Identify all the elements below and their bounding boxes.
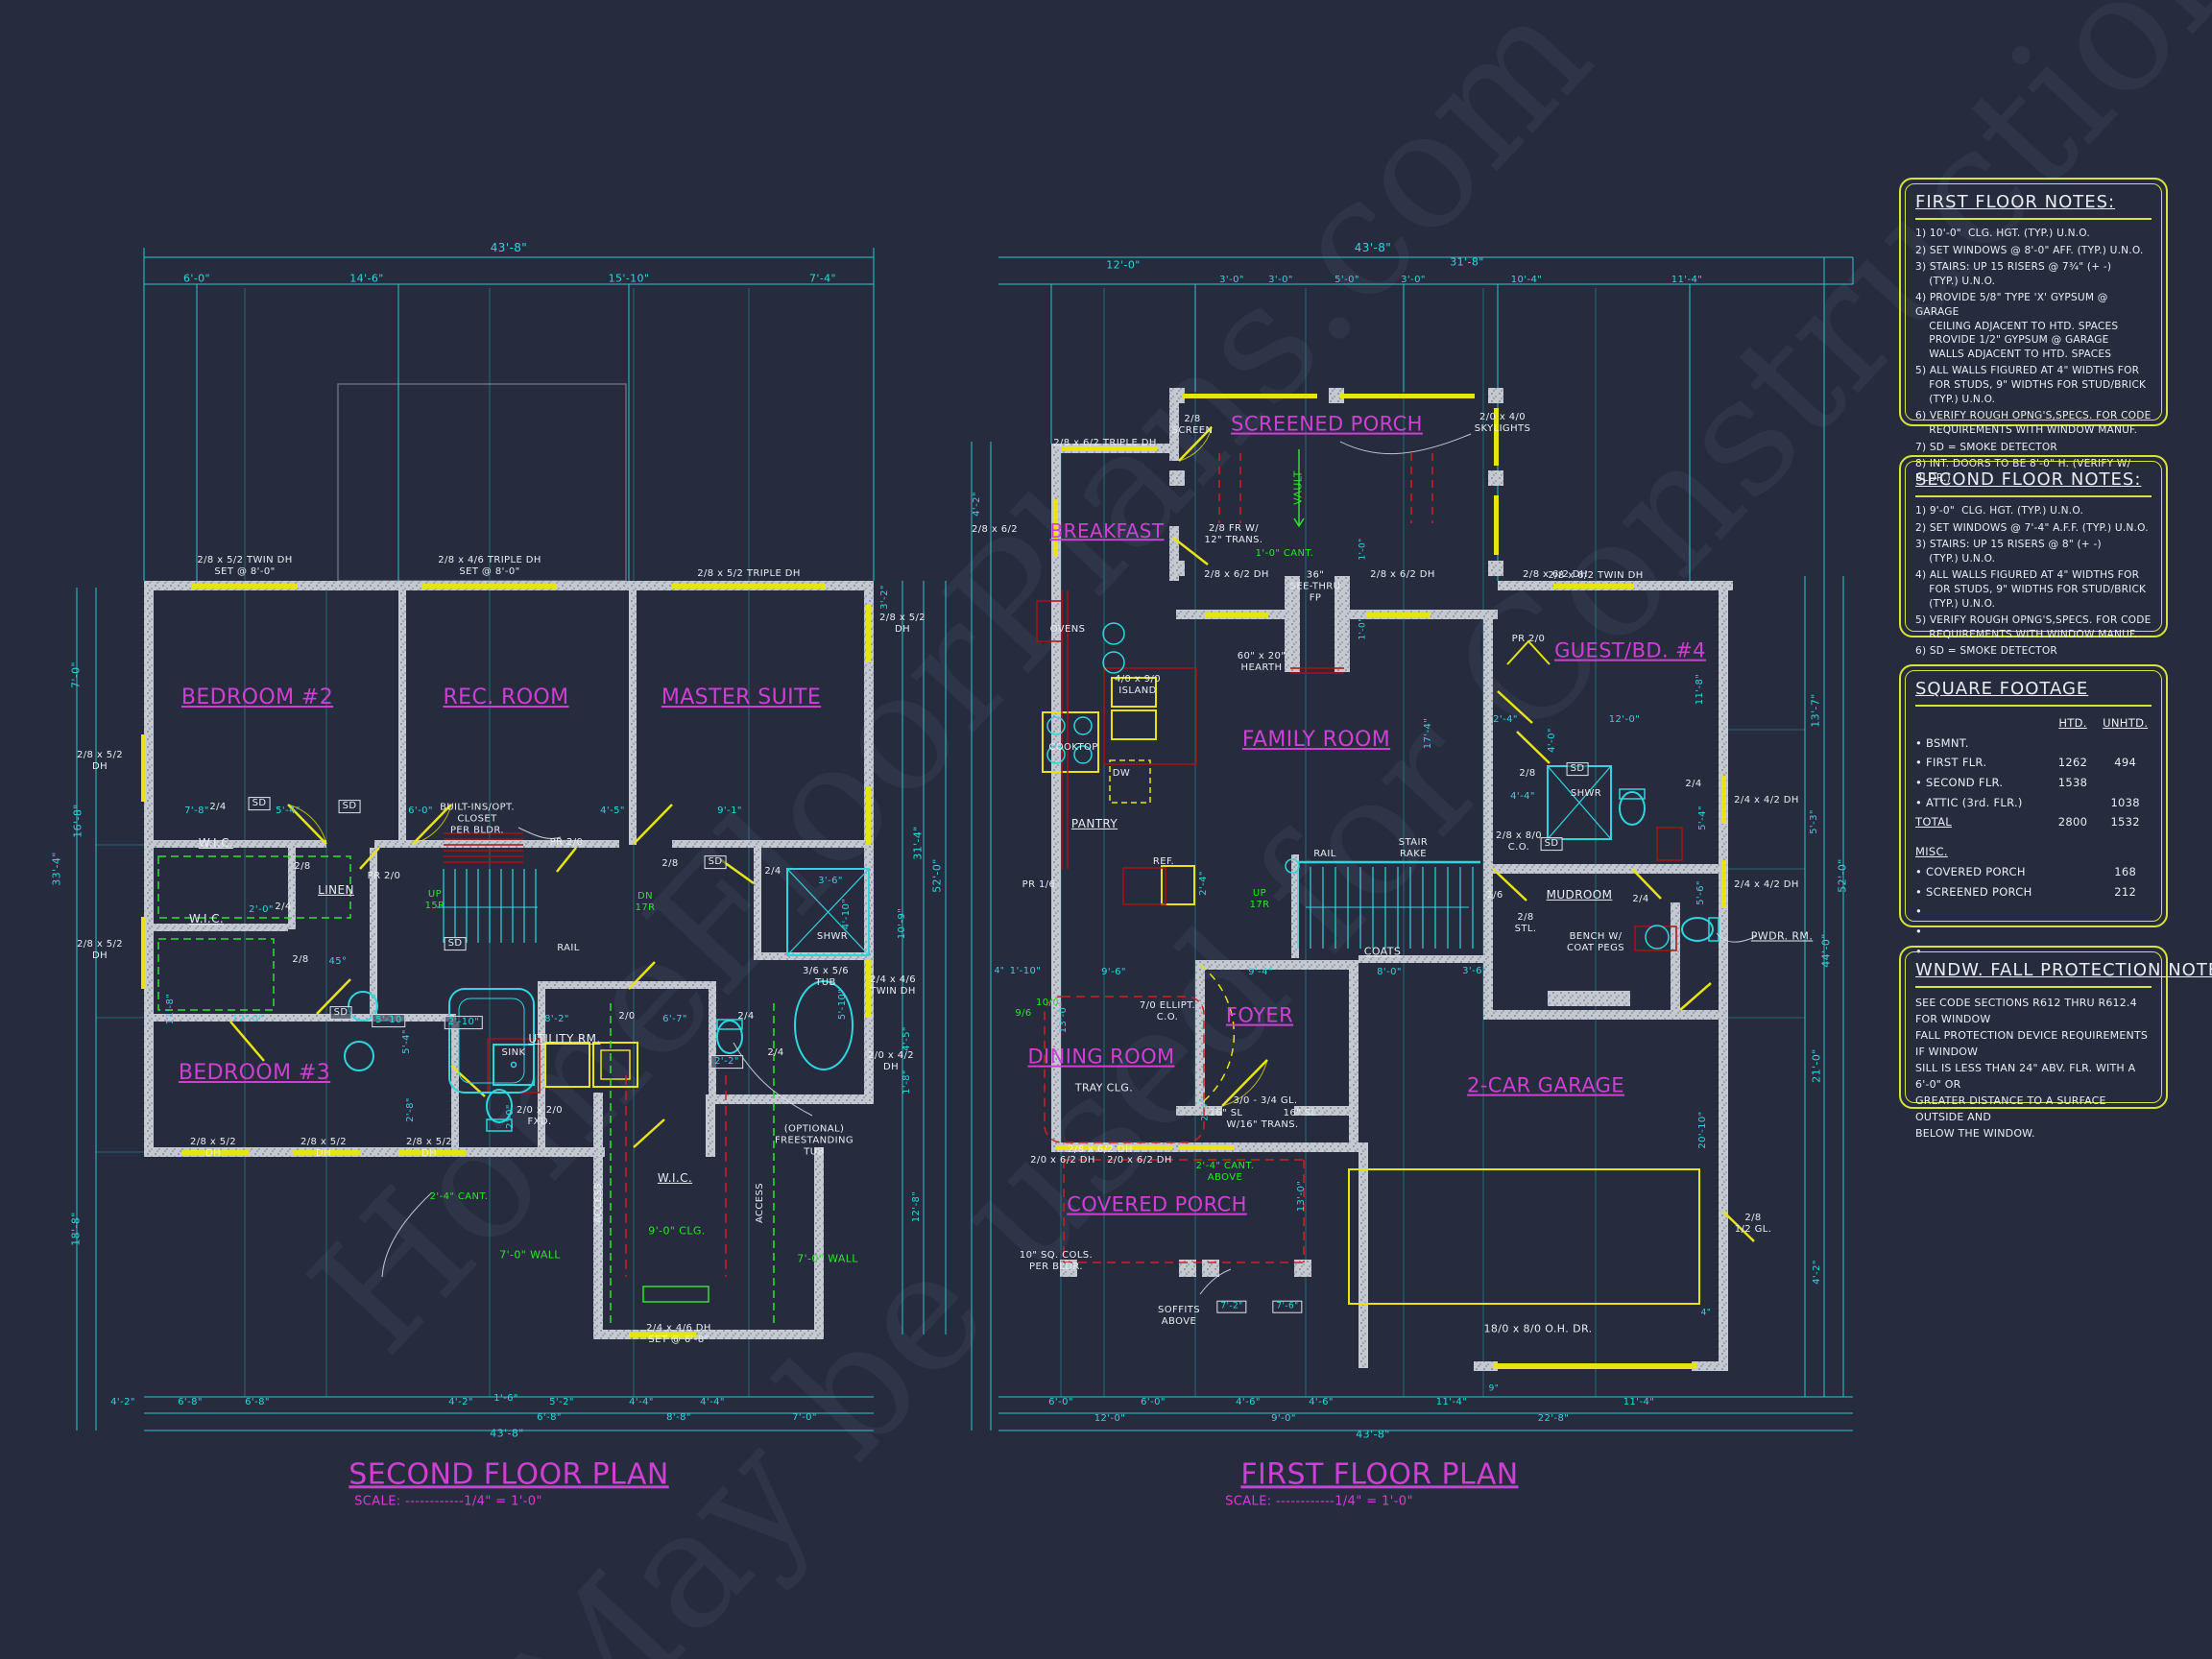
plan-label: 2/4 x 4/2 DH <box>1734 795 1799 806</box>
plan-label: COVERED PORCH <box>1067 1193 1247 1217</box>
second-floor-notes-list: 1) 9'-0" CLG. HGT. (TYP.) U.N.O.2) SET W… <box>1915 504 2152 659</box>
plan-label: 4'-5" <box>902 1026 913 1051</box>
plan-label: 4" <box>995 967 1005 977</box>
plan-label: 2/0 x 2/0 FXD. <box>517 1105 563 1128</box>
square-footage-box: SQUARE FOOTAGE HTD.UNHTD.• BSMNT.• FIRST… <box>1899 664 2168 927</box>
plan-label: W.I.C. <box>658 1171 692 1185</box>
plan-label: 7'-0" WALL <box>797 1254 858 1266</box>
plan-label: 4'-6" <box>1236 1397 1261 1408</box>
table-row: • <box>1915 922 2152 942</box>
plan-label: 10" SQ. COLS. PER BLDR. <box>1020 1250 1093 1273</box>
plan-label: 9'-4" <box>1248 967 1273 978</box>
plan-label: 33'-4" <box>52 852 64 885</box>
plan-label: 4'-2" <box>972 492 983 517</box>
plan-label: 13'-0" <box>1296 1181 1308 1212</box>
plan-label: 2/8 STL. <box>1515 912 1537 935</box>
plan-label: 6'-8" <box>245 1397 270 1408</box>
plan-label: 17'-4" <box>1423 718 1434 749</box>
plan-label: SD <box>339 800 361 813</box>
plan-label: 5'-10 <box>372 1014 405 1027</box>
plan-label: 3'-6" <box>818 876 843 887</box>
table-row: • FIRST FLR.1262494 <box>1915 753 2152 773</box>
plan-label: 5'-4" <box>401 1029 413 1054</box>
table-row: • ATTIC (3rd. FLR.)1038 <box>1915 793 2152 813</box>
plan-label: 16" SL <box>1284 1108 1317 1119</box>
plan-label: 31'-4" <box>913 826 926 859</box>
second-floor-notes-title: SECOND FLOOR NOTES: <box>1915 469 2152 497</box>
plan-label: (OPTIONAL) FREESTANDING TUB <box>775 1123 854 1157</box>
plan-label: UP 17R <box>1250 888 1270 911</box>
blueprint-page: HomeFloorPlans.com May be used for Const… <box>0 0 2212 1659</box>
plan-label: BREAKFAST <box>1050 520 1165 543</box>
plan-label: 5'-0" <box>1334 275 1359 286</box>
plan-label: 11'-8" <box>165 994 177 1024</box>
plan-label: ACCESS <box>593 1183 605 1223</box>
plan-label: 4/0 x 9/0 ISLAND <box>1115 674 1161 697</box>
plan-label: 7'-0" WALL <box>499 1250 561 1262</box>
plan-label: 2'-0" <box>249 904 274 916</box>
plan-label: 3/0 - 3/4 GL. <box>1233 1095 1297 1107</box>
plan-label: 2/8 x 5/2 DH <box>301 1137 347 1160</box>
plan-label: 2'-4" <box>1198 871 1210 896</box>
plan-label: PR 2/0 <box>550 837 584 849</box>
plan-label: PR 2/0 <box>1512 634 1546 645</box>
plan-label: 6'-7" <box>662 1014 687 1025</box>
plan-label: 52'-0" <box>932 858 945 892</box>
square-footage-table: HTD.UNHTD.• BSMNT.• FIRST FLR.1262494• S… <box>1915 713 2152 961</box>
plan-label: 3'-0" <box>1219 275 1244 286</box>
plan-label: 2'-4" CANT. ABOVE <box>1196 1161 1255 1184</box>
plan-label: 5'-2" <box>549 1397 574 1408</box>
plan-label: 8'-2" <box>544 1014 569 1025</box>
plan-label: W.I.C. <box>189 912 224 926</box>
plan-label: 2/8 x 5/2 DH <box>879 613 926 636</box>
note-item: 3) STAIRS: UP 15 RISERS @ 7¾" (+ -) (TYP… <box>1915 260 2152 288</box>
plan-label: 15'-10" <box>609 274 650 286</box>
plan-label: 8'-0" <box>1377 967 1402 978</box>
plan-label: 1'-10" <box>1010 966 1041 977</box>
table-row: • SCREENED PORCH212 <box>1915 882 2152 902</box>
plan-label: GUEST/BD. #4 <box>1554 639 1706 663</box>
plan-label: 5'-10" <box>837 989 849 1020</box>
first-floor-notes-title: FIRST FLOOR NOTES: <box>1915 192 2152 220</box>
plan-label: 12'-0" <box>232 1014 263 1025</box>
plan-label: 4'-2" <box>110 1397 135 1408</box>
plan-label: 2'-4" CANT. <box>430 1191 489 1203</box>
plan-label: 2/8 x 5/2 DH <box>406 1137 452 1160</box>
plan-label: TRAY CLG. <box>1075 1083 1133 1095</box>
plan-label: 2/8 x 6/2 DH <box>1370 569 1435 581</box>
plan-label: BUILT-INS/OPT. CLOSET PER BLDR. <box>440 802 515 835</box>
first-floor-notes-box: FIRST FLOOR NOTES: 1) 10'-0" CLG. HGT. (… <box>1899 178 2168 426</box>
plan-label: 20'-10" <box>1697 1111 1709 1148</box>
plan-label: FOYER <box>1226 1004 1293 1028</box>
plan-label: 45° <box>329 956 348 968</box>
plan-label: DN 17R <box>636 891 656 914</box>
plan-label: 14'-6" <box>349 274 383 286</box>
plan-label: 9/6 <box>1015 1008 1031 1020</box>
note-item: 6) VERIFY ROUGH OPNG'S,SPECS. FOR CODE R… <box>1915 409 2152 437</box>
plan-label: 2/0 x 6/2 DH <box>1107 1155 1172 1166</box>
plan-label: BENCH W/ COAT PEGS <box>1567 931 1624 954</box>
plan-label: PANTRY <box>1071 817 1118 830</box>
note-item: 3) STAIRS: UP 15 RISERS @ 8" (+ -) (TYP.… <box>1915 538 2152 565</box>
table-row: TOTAL28001532 <box>1915 812 2152 832</box>
plan-label: 2/0 x 6/2 DH <box>1030 1155 1095 1166</box>
plan-label: SD <box>445 937 467 950</box>
window-fall-protection-body: SEE CODE SECTIONS R612 THRU R612.4 FOR W… <box>1915 995 2152 1142</box>
plan-label: 13'-7" <box>1811 693 1823 727</box>
plan-label: SHWR <box>817 931 848 943</box>
note-item: 6) SD = SMOKE DETECTOR <box>1915 644 2152 659</box>
plan-label: 2/8 <box>1519 768 1535 780</box>
plan-label: 2/4 <box>1632 894 1648 905</box>
plan-label: COOKTOP <box>1048 742 1097 754</box>
plan-label: 3/6 x 5/6 TUB <box>803 966 849 989</box>
plan-label: 11'-8" <box>1695 674 1706 705</box>
second-floor-notes-box: SECOND FLOOR NOTES: 1) 9'-0" CLG. HGT. (… <box>1899 455 2168 637</box>
plan-label: 6'-0" <box>183 274 210 286</box>
plan-label: 4'-2" <box>448 1397 473 1408</box>
plan-label: 12'-0" <box>1609 714 1640 726</box>
plan-label: 2/8 x 6/2 DH <box>1204 569 1269 581</box>
plan-label: 2/0 <box>618 1011 635 1022</box>
plan-label: 2'-4" <box>1493 714 1518 726</box>
plan-label: FAMILY ROOM <box>1242 728 1390 753</box>
plan-label: 52'-0" <box>1838 858 1850 892</box>
plan-label: 4'-0" <box>1547 728 1558 753</box>
table-row: • SECOND FLR.1538 <box>1915 773 2152 793</box>
plan-label: 11'-4" <box>1623 1397 1654 1408</box>
plan-label: 6'-0" <box>1048 1397 1073 1408</box>
plan-label: SD <box>1541 837 1563 851</box>
plan-label: 2'-2" <box>710 1055 743 1069</box>
plan-label: 2/8 <box>661 858 678 870</box>
plan-label: BEDROOM #2 <box>181 685 333 710</box>
note-item: 4) PROVIDE 5/8" TYPE 'X' GYPSUM @ GARAGE… <box>1915 291 2152 361</box>
window-fall-protection-box: WNDW. FALL PROTECTION NOTES: SEE CODE SE… <box>1899 946 2168 1109</box>
plan-label: 1'-8" <box>902 1070 913 1094</box>
plan-label: 7/0 ELLIPT. C.O. <box>1140 1000 1195 1023</box>
table-row: • COVERED PORCH168 <box>1915 862 2152 882</box>
plan-label: 2/4 <box>767 1047 783 1059</box>
plan-label: 13'-0" <box>1058 1002 1070 1033</box>
plan-label: 2/8 SCREEN <box>1172 414 1214 437</box>
plan-label: 36" SEE-THRU FP <box>1290 569 1341 603</box>
plan-label: RAIL <box>557 943 580 954</box>
plan-label: RAIL <box>1313 849 1336 860</box>
plan-label: 2/8 x 8/0 C.O. <box>1496 830 1542 854</box>
plan-label: 4" <box>1701 1309 1712 1319</box>
note-item: 1) 10'-0" CLG. HGT. (TYP.) U.N.O. <box>1915 227 2152 241</box>
plan-label: 8'-8" <box>666 1412 691 1424</box>
plan-label: 7'-4" <box>809 274 836 286</box>
plan-label: 11'-4" <box>1436 1397 1467 1408</box>
plan-label: ACCESS <box>755 1183 766 1223</box>
plan-label: 4'-4" <box>1510 791 1535 803</box>
plan-label: 3'-0" <box>1268 275 1293 286</box>
plan-label: 2/8 x 5/2 DH <box>77 750 123 773</box>
plan-label: DW <box>1113 768 1130 780</box>
plan-label: 2/8 x 5/2 TRIPLE DH <box>697 568 801 580</box>
plan-label: 2/8 x 6/2 DH <box>1523 569 1588 581</box>
note-item: 5) VERIFY ROUGH OPNG'S,SPECS. FOR CODE R… <box>1915 613 2152 641</box>
plan-label: 3'-0" <box>1401 275 1426 286</box>
plan-label: 2/8 x 6/2 <box>972 524 1018 536</box>
plan-label: 2'-8" <box>405 1097 417 1122</box>
plan-label: 44'-0" <box>1821 933 1834 967</box>
plan-label: 9'-6" <box>1101 967 1126 978</box>
plan-label: 4'-6" <box>1309 1397 1334 1408</box>
note-item: 2) SET WINDOWS @ 8'-0" AFF. (TYP.) U.N.O… <box>1915 244 2152 258</box>
plan-label: 2/8 <box>294 861 310 873</box>
plan-label: 11'-4" <box>1671 275 1702 286</box>
plan-label: 2/0 x 4/0 SKYLIGHTS <box>1475 412 1531 435</box>
plan-label: PR 2/0 <box>368 871 401 882</box>
plan-label: 2/6 <box>1486 890 1503 902</box>
plan-label: 2/4 <box>1685 779 1701 790</box>
plan-label: 7'-2" <box>1216 1301 1246 1313</box>
square-footage-title: SQUARE FOOTAGE <box>1915 679 2152 707</box>
plan-label: 2-CAR GARAGE <box>1467 1074 1624 1098</box>
window-fall-protection-title: WNDW. FALL PROTECTION NOTES: <box>1915 960 2152 988</box>
plan-label: 2/8 x 4/6 TRIPLE DH SET @ 8'-0" <box>438 555 541 578</box>
plan-label: 4'-4" <box>629 1397 654 1408</box>
plan-label: 2/4 <box>209 802 226 813</box>
plan-label: 7'-8" <box>184 805 209 817</box>
plan-label: REC. ROOM <box>443 685 568 710</box>
table-row: • <box>1915 902 2152 922</box>
plan-label: 6'-8" <box>537 1412 562 1424</box>
plan-label: 2/8 x 5/2 TWIN DH SET @ 8'-0" <box>197 555 292 578</box>
table-row: HTD.UNHTD. <box>1915 713 2152 733</box>
plan-label: 2/4 x 4/6 DH SET @ 6'-8" <box>646 1323 711 1346</box>
plan-label: PWDR. RM. <box>1751 931 1813 944</box>
plan-label: 4'-4" <box>700 1397 725 1408</box>
plan-label: 2/8 x 5/2 DH <box>77 939 123 962</box>
plan-label: 2'-4" <box>1201 1098 1212 1120</box>
plan-label: 43'-8" <box>1356 1430 1389 1442</box>
plan-label: 2'-10" <box>445 1016 483 1029</box>
plan-label: 2/8 1/2 GL. <box>1735 1213 1772 1236</box>
plan-label: 9'-0" CLG. <box>648 1226 705 1238</box>
plan-label: 7'-0" <box>71 661 84 688</box>
plan-label: 4'-2" <box>1812 1260 1823 1285</box>
plan-label: SHWR <box>1571 788 1601 800</box>
plan-label: 5'-4" <box>276 805 301 817</box>
plan-label: SD <box>1567 762 1589 776</box>
plan-label: 22'-8" <box>1538 1413 1569 1425</box>
plan-label: 2/8 x 6/2 TRIPLE DH <box>1053 438 1157 449</box>
plan-label: 2/4 <box>764 866 781 878</box>
plan-label: SINK <box>502 1047 526 1059</box>
plan-label: 18/0 x 8/0 O.H. DR. <box>1483 1324 1592 1336</box>
plan-label: 3'-6" <box>1462 966 1487 977</box>
plan-label: SOFFITS ABOVE <box>1158 1305 1200 1328</box>
plan-label: UTILITY RM. <box>528 1032 600 1046</box>
table-row: MISC. <box>1915 832 2152 862</box>
plan-label: SECOND FLOOR PLAN <box>349 1457 668 1491</box>
plan-label: 6'-8" <box>178 1397 203 1408</box>
plan-label: 10'-4" <box>1511 275 1542 286</box>
plan-label: 60" x 20" HEARTH <box>1238 651 1286 674</box>
plan-label: 6'-0" <box>1141 1397 1166 1408</box>
plan-label: 12'-0" <box>1106 260 1140 273</box>
plan-label: MUDROOM <box>1547 888 1613 902</box>
plan-label: DINING ROOM <box>1027 1046 1174 1070</box>
plan-label: 1'-0" <box>1358 617 1369 639</box>
plan-label: LINEN <box>318 883 354 897</box>
plan-label: 7'-6" <box>1272 1301 1302 1313</box>
plan-label: 2/4 <box>275 902 291 913</box>
plan-label: SD <box>330 1006 352 1020</box>
plan-label: 21'-0" <box>1812 1048 1824 1082</box>
note-item: 5) ALL WALLS FIGURED AT 4" WIDTHS FOR FO… <box>1915 364 2152 406</box>
plan-label: 31'-8" <box>1450 257 1483 270</box>
plan-label: 5'-4" <box>1697 805 1709 830</box>
plan-label: 2/8 <box>292 954 308 966</box>
plan-label: 1'-0" CANT. <box>1256 548 1314 560</box>
plan-label: SCALE: ------------1/4" = 1'-0" <box>1225 1494 1413 1508</box>
table-row: • BSMNT. <box>1915 733 2152 754</box>
plan-label: 12'-8" <box>911 1191 923 1222</box>
plan-label: 10'-9" <box>897 908 908 939</box>
plan-label: 4'-5" <box>600 805 625 817</box>
plan-label: 9" <box>1489 1384 1500 1395</box>
plan-label: W.I.C. <box>199 836 233 850</box>
plan-label: 7'-0" <box>792 1412 817 1424</box>
plan-label: 43'-8" <box>1355 241 1391 254</box>
plan-label: 43'-8" <box>491 241 527 254</box>
plan-label: SCALE: ------------1/4" = 1'-0" <box>354 1494 542 1508</box>
plan-label: VAULT <box>1293 470 1306 505</box>
plan-label: 9'-0" <box>1271 1413 1296 1425</box>
plan-label: 2/4 x 4/2 DH <box>1734 879 1799 891</box>
plan-label: COATS <box>1364 947 1402 959</box>
plan-label: FIRST FLOOR PLAN <box>1240 1457 1518 1491</box>
plan-label: 16" SL <box>1210 1108 1243 1119</box>
plan-label: 2'-0" <box>505 1104 517 1129</box>
plan-label: MASTER SUITE <box>661 685 821 710</box>
plan-labels-layer: 43'-8"6'-0"14'-6"15'-10"7'-4"7'-0"16'-8"… <box>0 0 2212 1659</box>
plan-label: 18'-8" <box>71 1212 84 1245</box>
plan-label: 5'-6" <box>1695 880 1707 905</box>
plan-label: PR 1/6 <box>1022 879 1056 891</box>
first-floor-notes-list: 1) 10'-0" CLG. HGT. (TYP.) U.N.O.2) SET … <box>1915 227 2152 485</box>
note-item: 1) 9'-0" CLG. HGT. (TYP.) U.N.O. <box>1915 504 2152 518</box>
plan-label: 2/4 <box>737 1011 754 1022</box>
plan-label: 3'-2" <box>879 585 891 610</box>
plan-label: UP 15R <box>425 889 445 912</box>
plan-label: SD <box>705 855 727 869</box>
plan-label: STAIR RAKE <box>1399 837 1428 860</box>
plan-label: 43'-8" <box>490 1429 523 1441</box>
plan-label: REF. <box>1153 856 1174 868</box>
plan-label: OVENS <box>1050 624 1086 636</box>
plan-label: 4'-10" <box>841 899 853 929</box>
plan-label: 1'-0" <box>1358 538 1369 560</box>
plan-label: 2/8 x 5/2 DH <box>190 1137 236 1160</box>
plan-label: 6'-0" <box>408 805 433 817</box>
note-item: 4) ALL WALLS FIGURED AT 4" WIDTHS FOR FO… <box>1915 568 2152 611</box>
plan-label: 9'-1" <box>717 805 742 817</box>
note-item: 7) SD = SMOKE DETECTOR <box>1915 441 2152 455</box>
plan-label: 10/0 <box>1036 998 1059 1009</box>
plan-label: 12'-0" <box>1094 1413 1125 1425</box>
plan-label: W/16" TRANS. <box>1226 1119 1298 1131</box>
plan-label: 1'-6" <box>493 1393 518 1405</box>
note-item: 2) SET WINDOWS @ 7'-4" A.F.F. (TYP.) U.N… <box>1915 521 2152 536</box>
plan-label: 16'-8" <box>73 804 85 837</box>
plan-label: SD <box>249 797 271 810</box>
plan-label: BEDROOM #3 <box>179 1061 330 1086</box>
plan-label: SCREENED PORCH <box>1231 413 1423 437</box>
plan-label: 5'-3" <box>1809 809 1820 834</box>
plan-label: 2/8 FR W/ 12" TRANS. <box>1204 523 1262 546</box>
plan-label: 2/4 x 4/6 TWIN DH <box>870 974 916 998</box>
